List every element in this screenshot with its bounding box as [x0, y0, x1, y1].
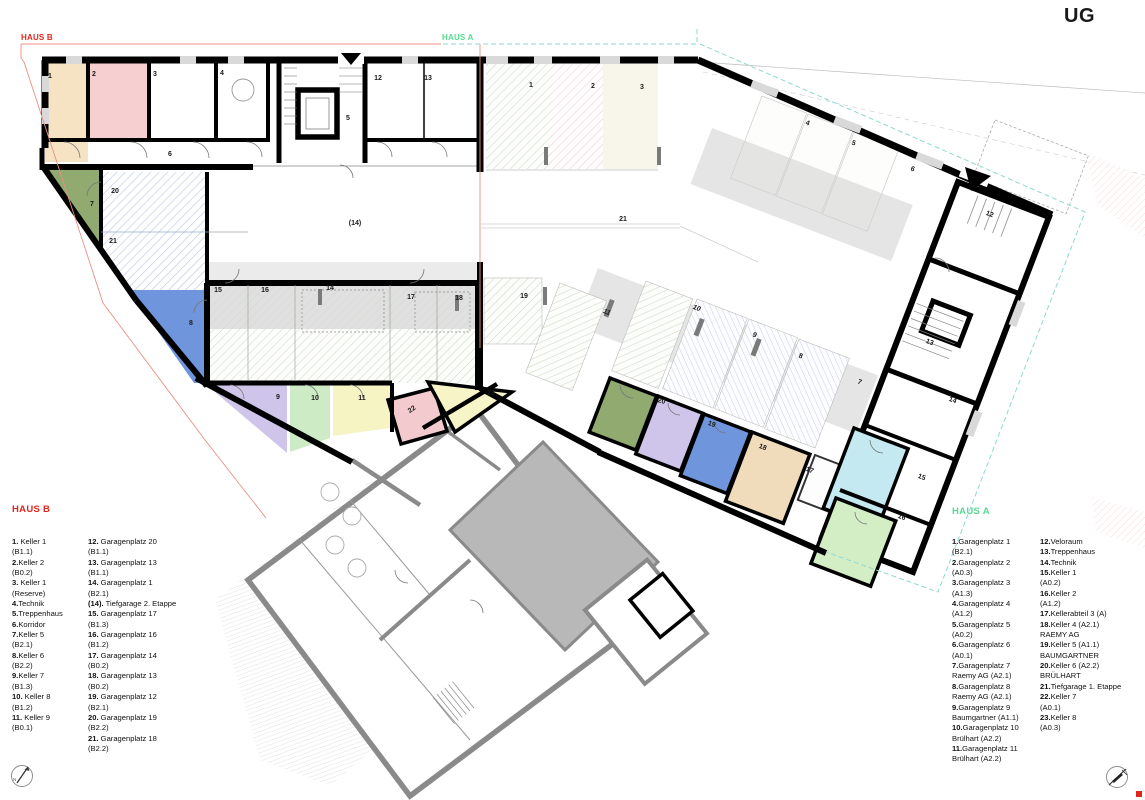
legend-line: 6.Korridor — [12, 620, 63, 630]
legend-line: 4.Technik — [12, 599, 63, 609]
legend-line: 7.Keller 5 — [12, 630, 63, 640]
legend-line: 17.Kellerabteil 3 (A) — [1040, 609, 1121, 619]
room-number-label: 13 — [424, 75, 432, 82]
legend-line: 21. Garagenplatz 18 — [88, 734, 176, 744]
legend-line: (A1.3) — [952, 589, 1019, 599]
legend-line: 3.Garagenplatz 3 — [952, 578, 1019, 588]
legend-line: (B1.1) — [12, 547, 63, 557]
room-number-label: 23 — [487, 390, 495, 397]
legend-line: (B2.1) — [88, 703, 176, 713]
legend-line: 18.Keller 4 (A2.1) — [1040, 620, 1121, 630]
legend-haus-a-col2: 12.Veloraum13.Treppenhaus14.Technik15.Ke… — [1040, 537, 1121, 734]
legend-line: 18. Garagenplatz 13 — [88, 671, 176, 681]
room-number-label: 14 — [326, 285, 334, 292]
legend-line: 21.Tiefgarage 1. Etappe — [1040, 682, 1121, 692]
legend-line: Raemy AG (A2.1) — [952, 692, 1019, 702]
haus-b-tag: HAUS B — [21, 33, 53, 42]
room-number-label: 21 — [109, 238, 117, 245]
legend-haus-b-col2: 12. Garagenplatz 20(B1.1)13. Garagenplat… — [88, 537, 176, 754]
room-number-label: 5 — [346, 115, 350, 122]
legend-line: 15.Keller 1 — [1040, 568, 1121, 578]
legend-line: (A1.2) — [1040, 599, 1121, 609]
legend-line: (14). Tiefgarage 2. Etappe — [88, 599, 176, 609]
legend-line: 4.Garagenplatz 4 — [952, 599, 1019, 609]
legend-line: 20.Keller 6 (A2.2) — [1040, 661, 1121, 671]
legend-line: 20. Garagenplatz 19 — [88, 713, 176, 723]
legend-line: (A0.2) — [952, 630, 1019, 640]
legend-line: (A0.3) — [952, 568, 1019, 578]
legend-line: (A0.3) — [1040, 723, 1121, 733]
legend-line: 3. Keller 1 — [12, 578, 63, 588]
legend-line: 13.Treppenhaus — [1040, 547, 1121, 557]
legend-line: 5.Garagenplatz 5 — [952, 620, 1019, 630]
haus-a-tag: HAUS A — [442, 33, 474, 42]
legend-line: Brülhart (A2.2) — [952, 754, 1019, 764]
plan-title: UG — [1064, 5, 1095, 28]
room-number-label: 7 — [90, 201, 94, 208]
room-b-keller2 — [90, 62, 148, 140]
legend-line: 9.Keller 7 — [12, 671, 63, 681]
legend-line: (B1.3) — [88, 620, 176, 630]
legend-line: 10.Garagenplatz 10 — [952, 723, 1019, 733]
legend-line: 12.Veloraum — [1040, 537, 1121, 547]
room-number-label: 10 — [311, 395, 319, 402]
legend-line: (B1.1) — [88, 547, 176, 557]
legend-line: 17. Garagenplatz 14 — [88, 651, 176, 661]
legend-line: (B2.1) — [952, 547, 1019, 557]
neighbour-parcel-hatch — [1085, 152, 1145, 238]
legend-haus-a-col1: 1.Garagenplatz 1(B2.1)2.Garagenplatz 2(A… — [952, 537, 1019, 765]
room-number-label: 2 — [92, 71, 96, 78]
room-number-label: 1 — [48, 73, 52, 80]
room-number-label: (14) — [349, 220, 361, 227]
legend-line: (B2.1) — [12, 640, 63, 650]
legend-line: (A0.1) — [952, 651, 1019, 661]
legend-line: (B2.2) — [12, 661, 63, 671]
legend-line: (B2.2) — [88, 744, 176, 754]
boundary-haus-a-top — [443, 28, 697, 44]
legend-line: 6.Garagenplatz 6 — [952, 640, 1019, 650]
legend-line: (B0.2) — [88, 682, 176, 692]
legend-line: 16. Garagenplatz 16 — [88, 630, 176, 640]
legend-line: (A1.2) — [952, 609, 1019, 619]
legend-line: 12. Garagenplatz 20 — [88, 537, 176, 547]
legend-line: (B1.3) — [12, 682, 63, 692]
room-number-label: 8 — [189, 320, 193, 327]
legend-line: 5.Treppenhaus — [12, 609, 63, 619]
wc-fixture — [232, 79, 254, 101]
room-number-label: 21 — [619, 216, 627, 223]
legend-line: 8.Garagenplatz 8 — [952, 682, 1019, 692]
legend-line: 23.Keller 8 — [1040, 713, 1121, 723]
legend-line: 14.Technik — [1040, 558, 1121, 568]
legend-line: Brülhart (A2.2) — [952, 734, 1019, 744]
legend-line: (B0.2) — [12, 568, 63, 578]
svg-text:N: N — [13, 777, 16, 782]
legend-line: 15. Garagenplatz 17 — [88, 609, 176, 619]
room-number-label: 2 — [591, 83, 595, 90]
north-compass-icon: N — [12, 766, 33, 787]
room-number-label: 11 — [358, 395, 366, 402]
room-number-label: 6 — [909, 166, 915, 174]
stall-a-19 — [484, 278, 542, 344]
stall-a-1 — [486, 63, 552, 169]
room-number-label: 15 — [214, 287, 222, 294]
legend-line: 14. Garagenplatz 1 — [88, 578, 176, 588]
room-number-label: 9 — [276, 394, 280, 401]
legend-line: 2.Garagenplatz 2 — [952, 558, 1019, 568]
stall-a-3 — [603, 63, 658, 169]
room-number-label: 3 — [640, 84, 644, 91]
legend-line: RAEMY AG — [1040, 630, 1121, 640]
legend-line: 1. Keller 1 — [12, 537, 63, 547]
legend-line: (B0.1) — [12, 723, 63, 733]
legend-line: (B2.1) — [88, 589, 176, 599]
legend-line: Raemy AG (A2.1) — [952, 671, 1019, 681]
legend-line: BAUMGARTNER — [1040, 651, 1121, 661]
room-number-label: 3 — [153, 71, 157, 78]
legend-line: 1.Garagenplatz 1 — [952, 537, 1019, 547]
stall-a-2 — [552, 63, 603, 169]
room-number-label: 1 — [529, 82, 533, 89]
room-number-label: 18 — [455, 295, 463, 302]
legend-line: 9.Garagenplatz 9 — [952, 703, 1019, 713]
north-compass-icon-right — [1107, 767, 1128, 788]
revision-mark — [1136, 791, 1142, 797]
legend-line: 22.Keller 7 — [1040, 692, 1121, 702]
legend-line: (Reserve) — [12, 589, 63, 599]
legend-haus-a-title: HAUS A — [952, 506, 990, 517]
room-number-label: 20 — [111, 188, 119, 195]
legend-line: (B0.2) — [88, 661, 176, 671]
room-number-label: 16 — [261, 287, 269, 294]
room-number-label: 19 — [520, 293, 528, 300]
room-number-label: 6 — [168, 151, 172, 158]
legend-line: 19.Keller 5 (A1.1) — [1040, 640, 1121, 650]
legend-line: (B1.2) — [12, 703, 63, 713]
legend-line: 13. Garagenplatz 13 — [88, 558, 176, 568]
legend-line: (B2.2) — [88, 723, 176, 733]
room-number-label: 4 — [220, 70, 224, 77]
legend-line: (A0.1) — [1040, 703, 1121, 713]
legend-haus-b-col1: 1. Keller 1(B1.1)2.Keller 2(B0.2)3. Kell… — [12, 537, 63, 734]
legend-line: (B1.2) — [88, 640, 176, 650]
legend-line: 10. Keller 8 — [12, 692, 63, 702]
ramp-edge-band — [207, 262, 477, 282]
legend-line: 16.Keller 2 — [1040, 589, 1121, 599]
room-number-label: 17 — [407, 294, 415, 301]
legend-line: 11.Garagenplatz 11 — [952, 744, 1019, 754]
legend-line: 19. Garagenplatz 12 — [88, 692, 176, 702]
floorplan-page: 12345612132021(14)781516141718910112223 … — [0, 0, 1145, 800]
legend-line: (A0.2) — [1040, 578, 1121, 588]
room-number-label: 12 — [374, 75, 382, 82]
legend-line: 2.Keller 2 — [12, 558, 63, 568]
legend-line: 11. Keller 9 — [12, 713, 63, 723]
legend-line: 7.Garagenplatz 7 — [952, 661, 1019, 671]
legend-line: (B1.1) — [88, 568, 176, 578]
legend-line: 8.Keller 6 — [12, 651, 63, 661]
legend-haus-b-title: HAUS B — [12, 504, 50, 515]
legend-line: BRÜLHART — [1040, 671, 1121, 681]
legend-line: Baumgartner (A1.1) — [952, 713, 1019, 723]
